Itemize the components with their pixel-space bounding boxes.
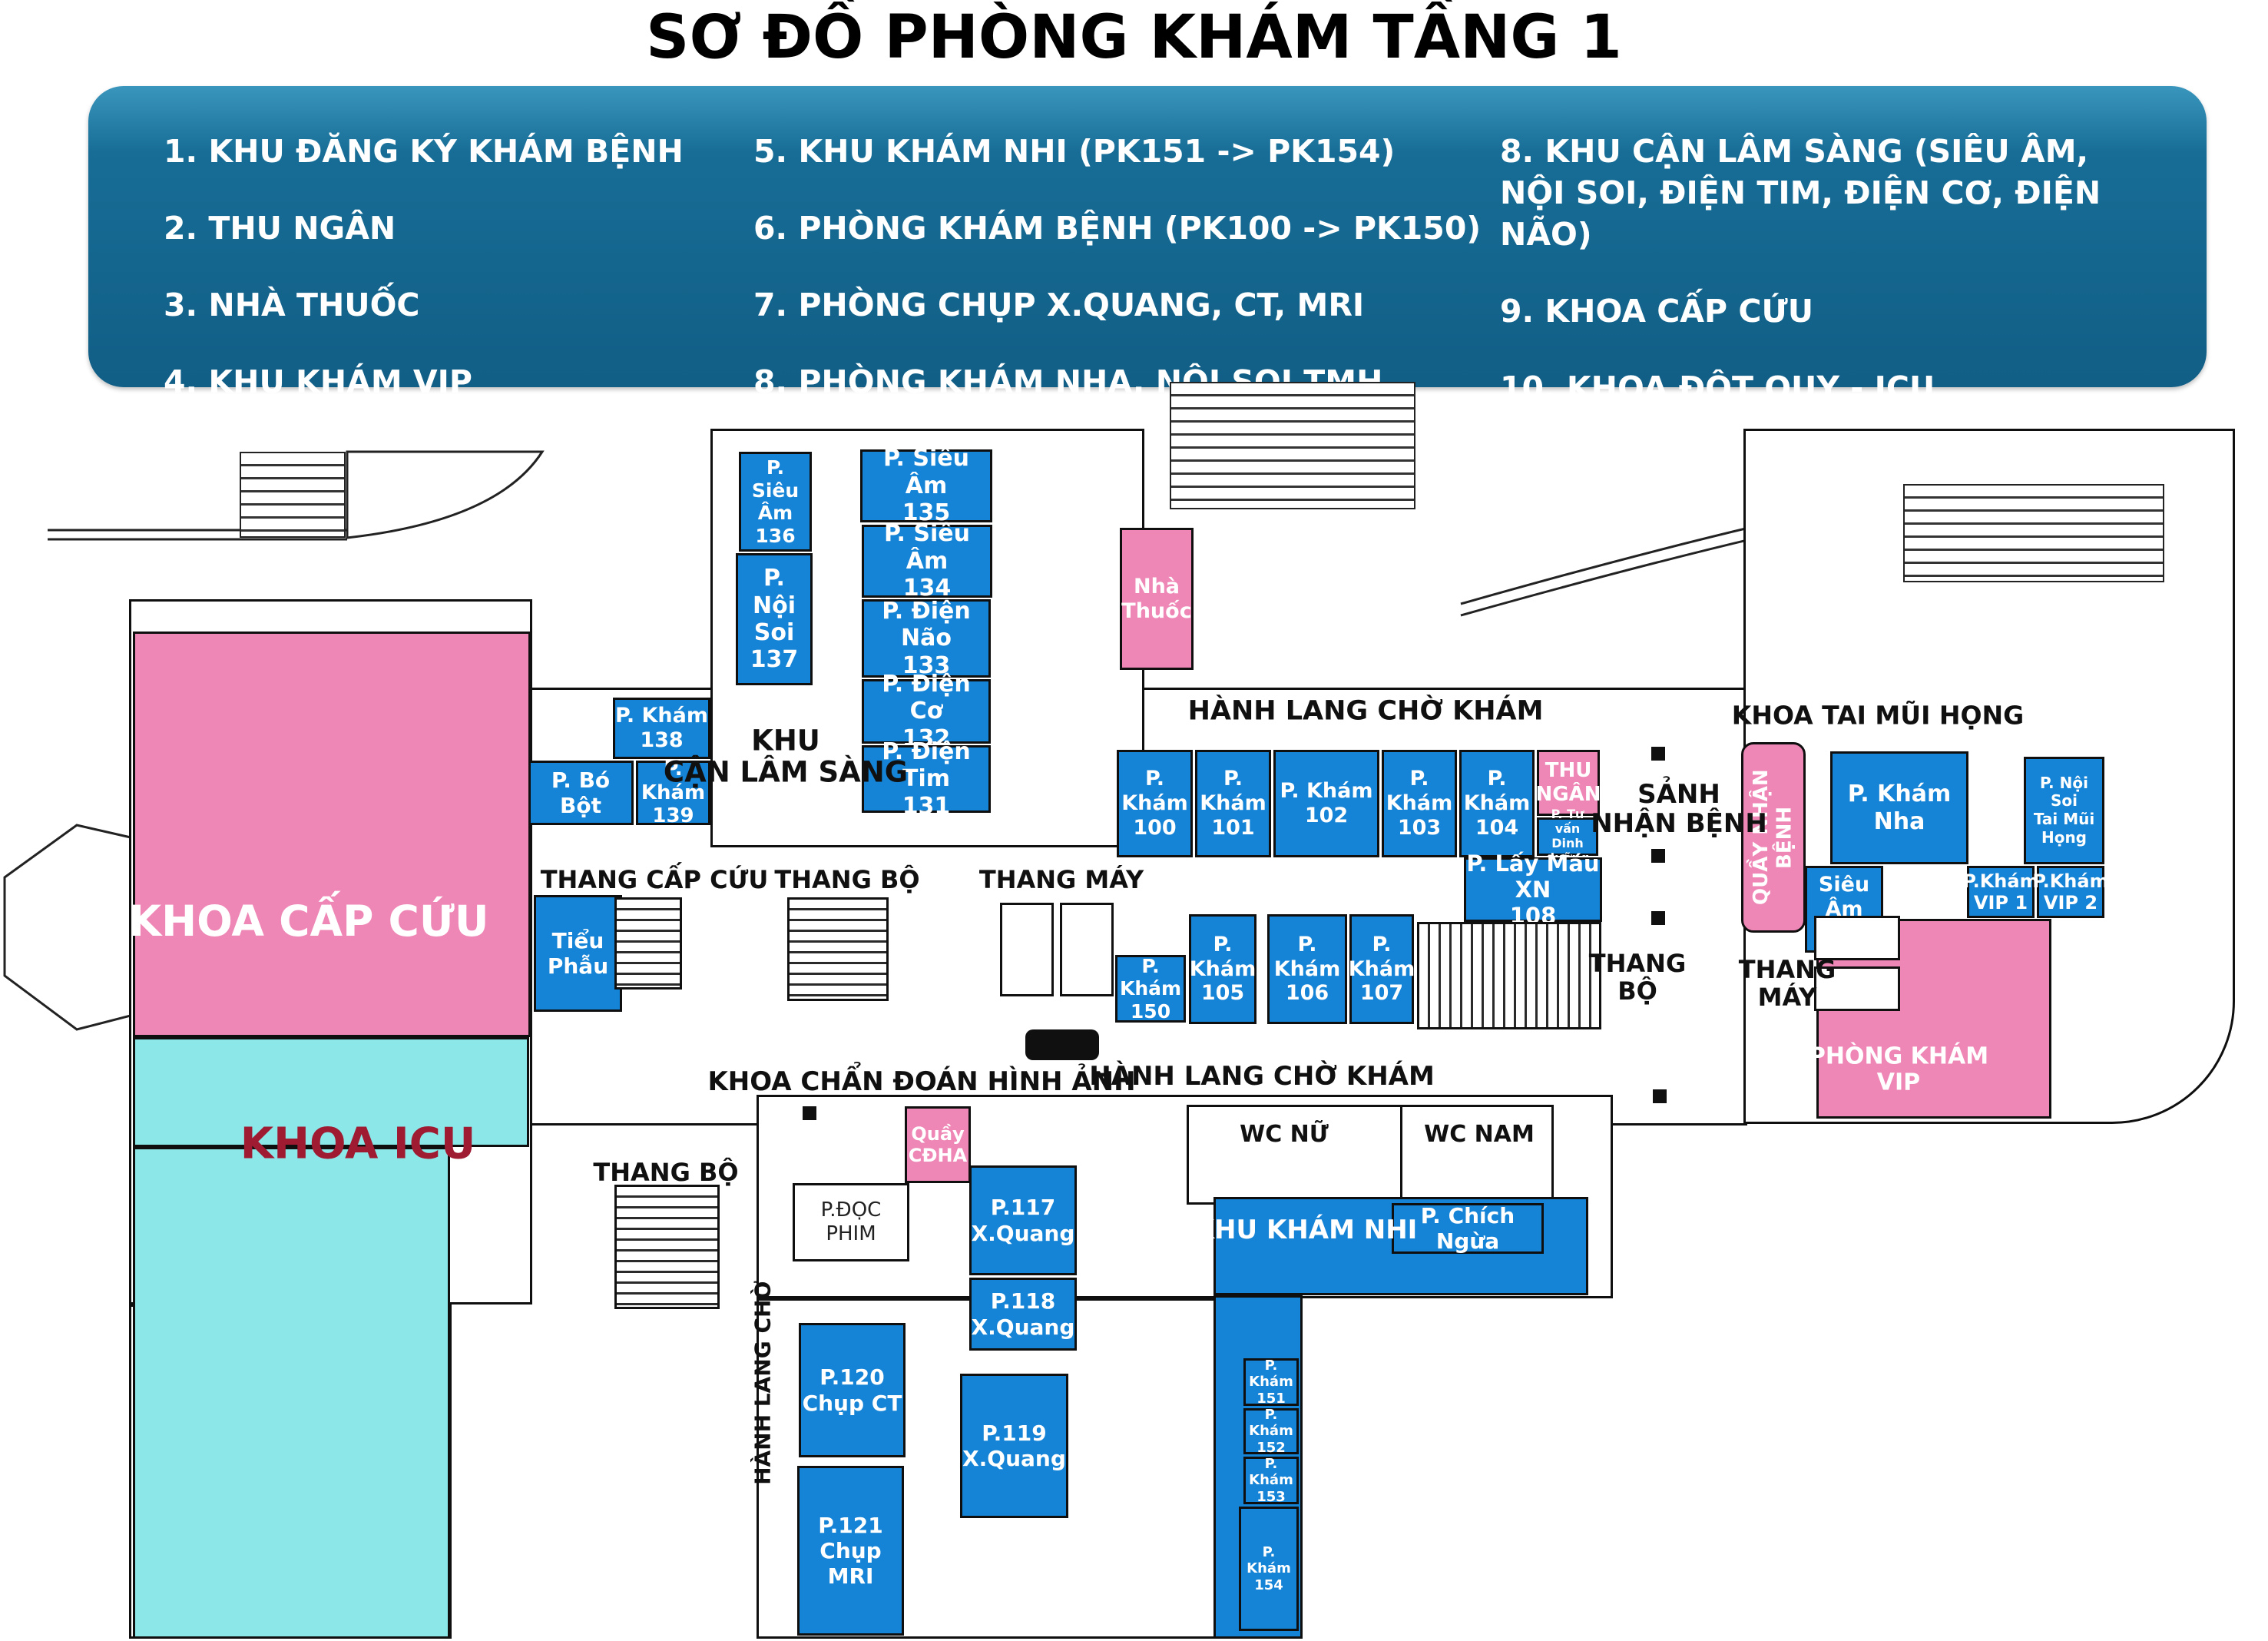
room-p117-xquang: P.117 X.Quang [969,1165,1077,1275]
room-p121-chup-mri: P.121 Chụp MRI [797,1466,904,1636]
room-kham-151: P. Khám 151 [1243,1358,1299,1406]
legend-item-3-1: 8. KHU CẬN LÂM SÀNG (SIÊU ÂM, NỘI SOI, Đ… [1500,131,2130,255]
column-sq-5 [1653,1089,1667,1103]
column-sq-2 [1651,849,1665,863]
room-kham-150: P. Khám 150 [1115,955,1186,1023]
room-bo-bot-label: P. Bó Bột [530,767,631,818]
room-kham-102-label: P. Khám 102 [1280,779,1373,828]
room-kham-106-label: P. Khám 106 [1270,933,1345,1006]
room-kham-vip-2: P.Khám VIP 2 [2037,866,2104,918]
label-thang-bo-right: THANG BỘ [1589,950,1686,1006]
room-kham-153: P. Khám 153 [1243,1457,1299,1504]
label-khoa-chan-doan-hinh-anh: KHOA CHẨN ĐOÁN HÌNH ẢNH [707,1067,1135,1096]
bench-lift-lobby [1025,1029,1099,1060]
room-sieu-am-136-label: P. Siêu Âm 136 [741,456,810,547]
legend-item-1-1: 1. KHU ĐĂNG KÝ KHÁM BỆNH [164,131,753,172]
room-kham-154-label: P. Khám 154 [1241,1544,1296,1593]
stairs-thang-bo-bottom [614,1185,720,1309]
room-p119-xquang: P.119 X.Quang [960,1374,1068,1518]
room-p118-xquang-label: P.118 X.Quang [972,1288,1075,1339]
label-sanh-nhan-benh: SẢNH NHẬN BỆNH [1591,780,1767,838]
room-kham-103-label: P. Khám 103 [1384,767,1455,840]
shell-wc-nam [1400,1105,1554,1205]
elevator-right-1 [1814,916,1900,960]
label-hanh-lang-cho-kham-top: HÀNH LANG CHỜ KHÁM [1188,696,1544,726]
room-kham-106: P. Khám 106 [1267,914,1347,1024]
label-thang-may-mid: THANG MÁY [979,867,1144,894]
zone-khoa-cap-cuu [133,632,531,1037]
column-sq-4 [803,1106,816,1120]
room-kham-101: P. Khám 101 [1195,750,1271,857]
room-tieu-phau-label: Tiểu Phẫu [548,928,608,979]
room-sieu-am-136: P. Siêu Âm 136 [739,452,812,552]
room-doc-phim-label: P.ĐỌC PHIM [795,1198,907,1245]
legend-item-2-3: 7. PHÒNG CHỤP X.QUANG, CT, MRI [753,284,1500,326]
label-thang-cap-cuu: THANG CẤP CỨU [541,867,769,894]
legend-item-2-1: 5. KHU KHÁM NHI (PK151 -> PK154) [753,131,1500,172]
room-kham-100-label: P. Khám 100 [1119,767,1190,840]
room-kham-105-label: P. Khám 105 [1190,933,1257,1006]
room-lay-mau-108-label: P. Lấy Máu XN 108 [1466,850,1600,930]
floorplan-page: SƠ ĐỒ PHÒNG KHÁM TẦNG 1 1. KHU ĐĂNG KÝ K… [0,0,2268,1641]
label-hanh-lang-cho-vertical: HÀNH LANG CHỜ [750,1281,774,1485]
zone-khoa-icu-lower [133,1147,450,1639]
label-wc-nam: WC NAM [1424,1122,1535,1148]
column-sq-1 [1651,747,1665,761]
shell-wc-nu [1187,1105,1409,1205]
room-kham-nha: P. Khám Nha [1830,751,1968,864]
stairs-thang-bo-right [1417,922,1601,1029]
label-khoa-cap-cuu: KHOA CẤP CỨU [128,898,488,946]
page-title: SƠ ĐỒ PHÒNG KHÁM TẦNG 1 [0,3,2268,72]
label-khu-kham-nhi: KHU KHÁM NHI [1194,1215,1418,1245]
room-noi-soi-137-label: P. Nội Soi 137 [738,565,810,674]
room-p120-chup-ct: P.120 Chụp CT [799,1323,906,1457]
label-khu-can-lam-sang: KHU CẬN LÂM SÀNG [664,725,908,789]
room-tieu-phau: Tiểu Phẫu [534,895,622,1012]
room-kham-107: P. Khám 107 [1349,914,1414,1024]
room-kham-103: P. Khám 103 [1382,750,1457,857]
label-thang-bo-bottom: THANG BỘ [593,1159,738,1187]
room-kham-150-label: P. Khám 150 [1117,955,1184,1023]
room-sieu-am-134: P. Siêu Âm 134 [862,525,992,598]
legend-item-1-4: 4. KHU KHÁM VIP [164,361,753,403]
legend-columns: 1. KHU ĐĂNG KÝ KHÁM BỆNH2. THU NGÂN3. NH… [88,86,2207,445]
legend-item-3-2: 9. KHOA CẤP CỨU [1500,290,2130,332]
room-kham-nha-label: P. Khám Nha [1833,781,1966,835]
room-kham-100: P. Khám 100 [1117,750,1193,857]
stairs-thang-bo-mid [787,897,889,1001]
room-p120-chup-ct-label: P.120 Chụp CT [803,1364,902,1415]
elevator-lobby-2 [1060,903,1114,996]
room-quay-cdha: Quầy CĐHA [905,1106,971,1183]
label-khoa-icu: KHOA ICU [240,1121,476,1169]
room-kham-101-label: P. Khám 101 [1197,767,1269,840]
room-kham-152: P. Khám 152 [1243,1408,1299,1454]
room-kham-152-label: P. Khám 152 [1246,1407,1296,1456]
decor-ramp-top-center [1170,382,1415,509]
room-kham-vip-2-label: P.Khám VIP 2 [2032,870,2108,914]
room-kham-104-label: P. Khám 104 [1462,767,1532,840]
room-dien-nao-133-label: P. Điện Não 133 [864,598,988,679]
room-nha-thuoc-label: Nhà Thuốc [1121,575,1191,624]
room-quay-cdha-label: Quầy CĐHA [909,1123,967,1167]
room-kham-107-label: P. Khám 107 [1349,933,1415,1006]
room-kham-105: P. Khám 105 [1189,914,1257,1024]
room-noi-soi-tai-mui-hong: P. Nội Soi Tai Mũi Họng [2024,757,2104,864]
room-p121-chup-mri-label: P.121 Chụp MRI [800,1513,902,1589]
decor-ramp-top-right [1903,484,2164,582]
legend-column-1: 1. KHU ĐĂNG KÝ KHÁM BỆNH2. THU NGÂN3. NH… [164,131,753,445]
room-kham-104: P. Khám 104 [1459,750,1535,857]
label-thang-bo-mid: THANG BỘ [774,867,919,894]
room-noi-soi-137: P. Nội Soi 137 [736,553,813,685]
label-thang-may-right: THANG MÁY [1739,956,1836,1012]
room-p118-xquang: P.118 X.Quang [969,1278,1077,1351]
legend-item-2-2: 6. PHÒNG KHÁM BỆNH (PK100 -> PK150) [753,207,1500,249]
room-noi-soi-tai-mui-hong-label: P. Nội Soi Tai Mũi Họng [2026,774,2102,847]
room-kham-154: P. Khám 154 [1239,1507,1299,1631]
room-p117-xquang-label: P.117 X.Quang [972,1195,1075,1245]
room-bo-bot: P. Bó Bột [528,761,634,825]
room-sieu-am-135: P. Siêu Âm 135 [860,449,992,522]
room-kham-vip-1: P.Khám VIP 1 [1967,866,2035,918]
room-dien-nao-133: P. Điện Não 133 [862,599,991,678]
room-sieu-am-135-label: P. Siêu Âm 135 [863,445,990,526]
decor-ramp-top-left [240,452,346,538]
room-sieu-am-134-label: P. Siêu Âm 134 [864,520,990,602]
room-nha-thuoc: Nhà Thuốc [1120,528,1194,670]
legend-item-3-3: 10. KHOA ĐỘT QUỴ - ICU [1500,367,2130,409]
elevator-lobby-1 [1000,903,1054,996]
room-lay-mau-108: P. Lấy Máu XN 108 [1464,857,1602,922]
label-phong-kham-vip: PHÒNG KHÁM VIP [1809,1043,1988,1095]
label-hanh-lang-cho-kham-mid: HÀNH LANG CHỜ KHÁM [1089,1062,1435,1091]
legend-box: 1. KHU ĐĂNG KÝ KHÁM BỆNH2. THU NGÂN3. NH… [88,86,2207,387]
room-kham-151-label: P. Khám 151 [1246,1358,1296,1407]
room-kham-153-label: P. Khám 153 [1246,1456,1296,1505]
legend-column-3: 8. KHU CẬN LÂM SÀNG (SIÊU ÂM, NỘI SOI, Đ… [1500,131,2130,445]
room-kham-102: P. Khám 102 [1273,750,1379,857]
room-kham-vip-1-label: P.Khám VIP 1 [1962,870,2038,914]
legend-item-1-3: 3. NHÀ THUỐC [164,284,753,326]
legend-item-1-2: 2. THU NGÂN [164,207,753,249]
room-doc-phim: P.ĐỌC PHIM [793,1183,909,1261]
stairs-thang-cap-cuu [614,897,682,990]
room-p119-xquang-label: P.119 X.Quang [962,1421,1066,1471]
label-wc-nu: WC NỮ [1240,1122,1329,1148]
column-sq-3 [1651,911,1665,925]
label-khoa-tai-mui-hong: KHOA TAI MŨI HỌNG [1732,702,2024,731]
